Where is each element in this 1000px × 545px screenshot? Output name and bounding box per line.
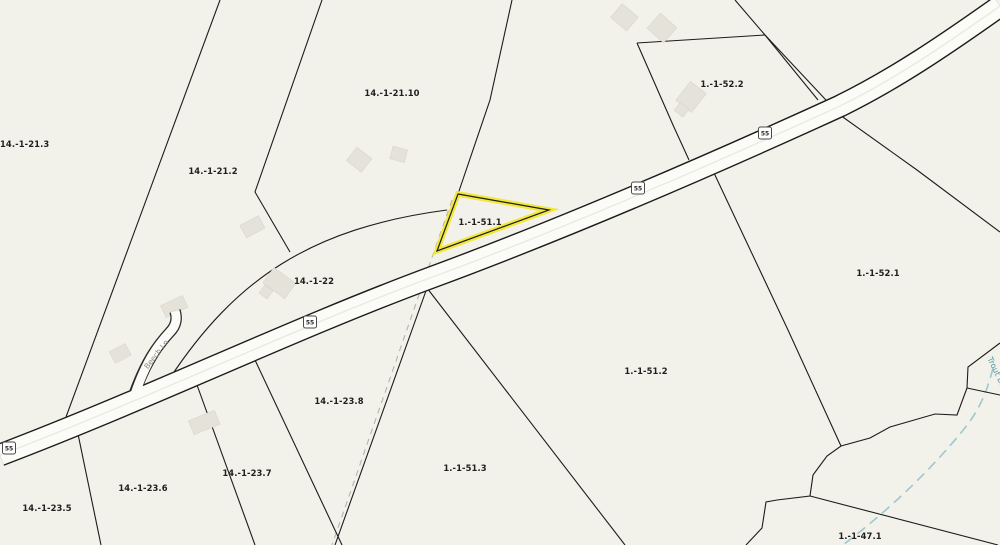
boundary-21-3-21-2 bbox=[66, 0, 220, 417]
parcel-label-1-1-52-2: 1.-1-52.2 bbox=[700, 79, 743, 89]
parcel-label-14-1-21-3: 14.-1-21.3 bbox=[0, 139, 49, 149]
parcel-label-1-1-47-1: 1.-1-47.1 bbox=[838, 531, 881, 541]
building-footprint bbox=[611, 4, 639, 31]
building-footprint bbox=[346, 147, 371, 172]
route-shield-number: 55 bbox=[761, 130, 769, 137]
boundary-47-1-jagged bbox=[746, 343, 1000, 545]
water-name-trout-bk: Trout Bk bbox=[985, 355, 1000, 389]
route-shield-number: 55 bbox=[634, 185, 642, 192]
parcel-label-14-1-23-6: 14.-1-23.6 bbox=[118, 483, 167, 493]
building-footprint bbox=[188, 410, 220, 434]
building-footprint bbox=[647, 13, 677, 43]
parcel-label-1-1-51-1: 1.-1-51.1 bbox=[458, 217, 501, 227]
route-shield-number: 55 bbox=[306, 319, 314, 326]
boundary-51-2-52-1 bbox=[714, 173, 841, 446]
route-55-shield: 55 bbox=[3, 442, 16, 454]
parcel-label-1-1-52-1: 1.-1-52.1 bbox=[856, 268, 899, 278]
boundary-47-1-east bbox=[967, 388, 1000, 395]
boundary-21-2-21-10 bbox=[255, 0, 322, 252]
parcel-label-14-1-22: 14.-1-22 bbox=[294, 276, 334, 286]
parcel-label-1-1-51-2: 1.-1-51.2 bbox=[624, 366, 667, 376]
parcel-map-viewport[interactable]: 55 55 55 55 14.-1-21.3 14.-1-21.2 14.-1-… bbox=[0, 0, 1000, 545]
parcel-label-14-1-21-10: 14.-1-21.10 bbox=[364, 88, 419, 98]
boundary-23-7-23-8 bbox=[255, 360, 342, 545]
parcel-label-14-1-23-7: 14.-1-23.7 bbox=[222, 468, 271, 478]
parcel-label-14-1-23-8: 14.-1-23.8 bbox=[314, 396, 363, 406]
boundary-23-5-23-6 bbox=[78, 434, 101, 545]
stream-line bbox=[843, 368, 993, 545]
parcel-label-1-1-51-3: 1.-1-51.3 bbox=[443, 463, 486, 473]
route-55-shield: 55 bbox=[632, 182, 645, 194]
parcel-label-14-1-23-5: 14.-1-23.5 bbox=[22, 503, 71, 513]
building-footprint bbox=[109, 343, 131, 363]
route-shield-number: 55 bbox=[5, 445, 13, 452]
water-layer bbox=[843, 368, 993, 545]
parcel-map-canvas[interactable]: 55 55 55 55 14.-1-21.3 14.-1-21.2 14.-1-… bbox=[0, 0, 1000, 545]
parcel-label-14-1-21-2: 14.-1-21.2 bbox=[188, 166, 237, 176]
boundary-52-2-right bbox=[735, 0, 818, 100]
boundary-23-8-51-3 bbox=[335, 288, 427, 545]
boundary-23-6-23-7 bbox=[197, 385, 255, 545]
boundary-52-1-north bbox=[840, 115, 1000, 232]
boundary-21-10-51-1 bbox=[458, 0, 512, 194]
building-footprint bbox=[240, 216, 265, 238]
route-55-shield: 55 bbox=[304, 316, 317, 328]
boundary-51-3-51-2 bbox=[427, 288, 625, 545]
building-footprint bbox=[390, 146, 408, 162]
route-55-shield: 55 bbox=[759, 127, 772, 139]
label-layer: 14.-1-21.3 14.-1-21.2 14.-1-21.10 1.-1-5… bbox=[0, 79, 1000, 541]
